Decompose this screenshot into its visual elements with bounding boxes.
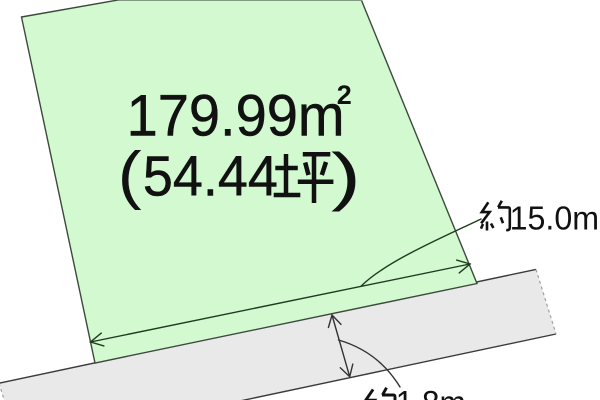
svg-text:54.44: 54.44: [143, 145, 278, 209]
svg-text:2: 2: [337, 80, 352, 110]
svg-text:15.0m: 15.0m: [510, 200, 599, 237]
svg-text:1.8m: 1.8m: [396, 384, 466, 400]
svg-text:179.99m: 179.99m: [127, 84, 345, 149]
svg-text:): ): [331, 140, 361, 212]
svg-text:(: (: [118, 139, 142, 211]
